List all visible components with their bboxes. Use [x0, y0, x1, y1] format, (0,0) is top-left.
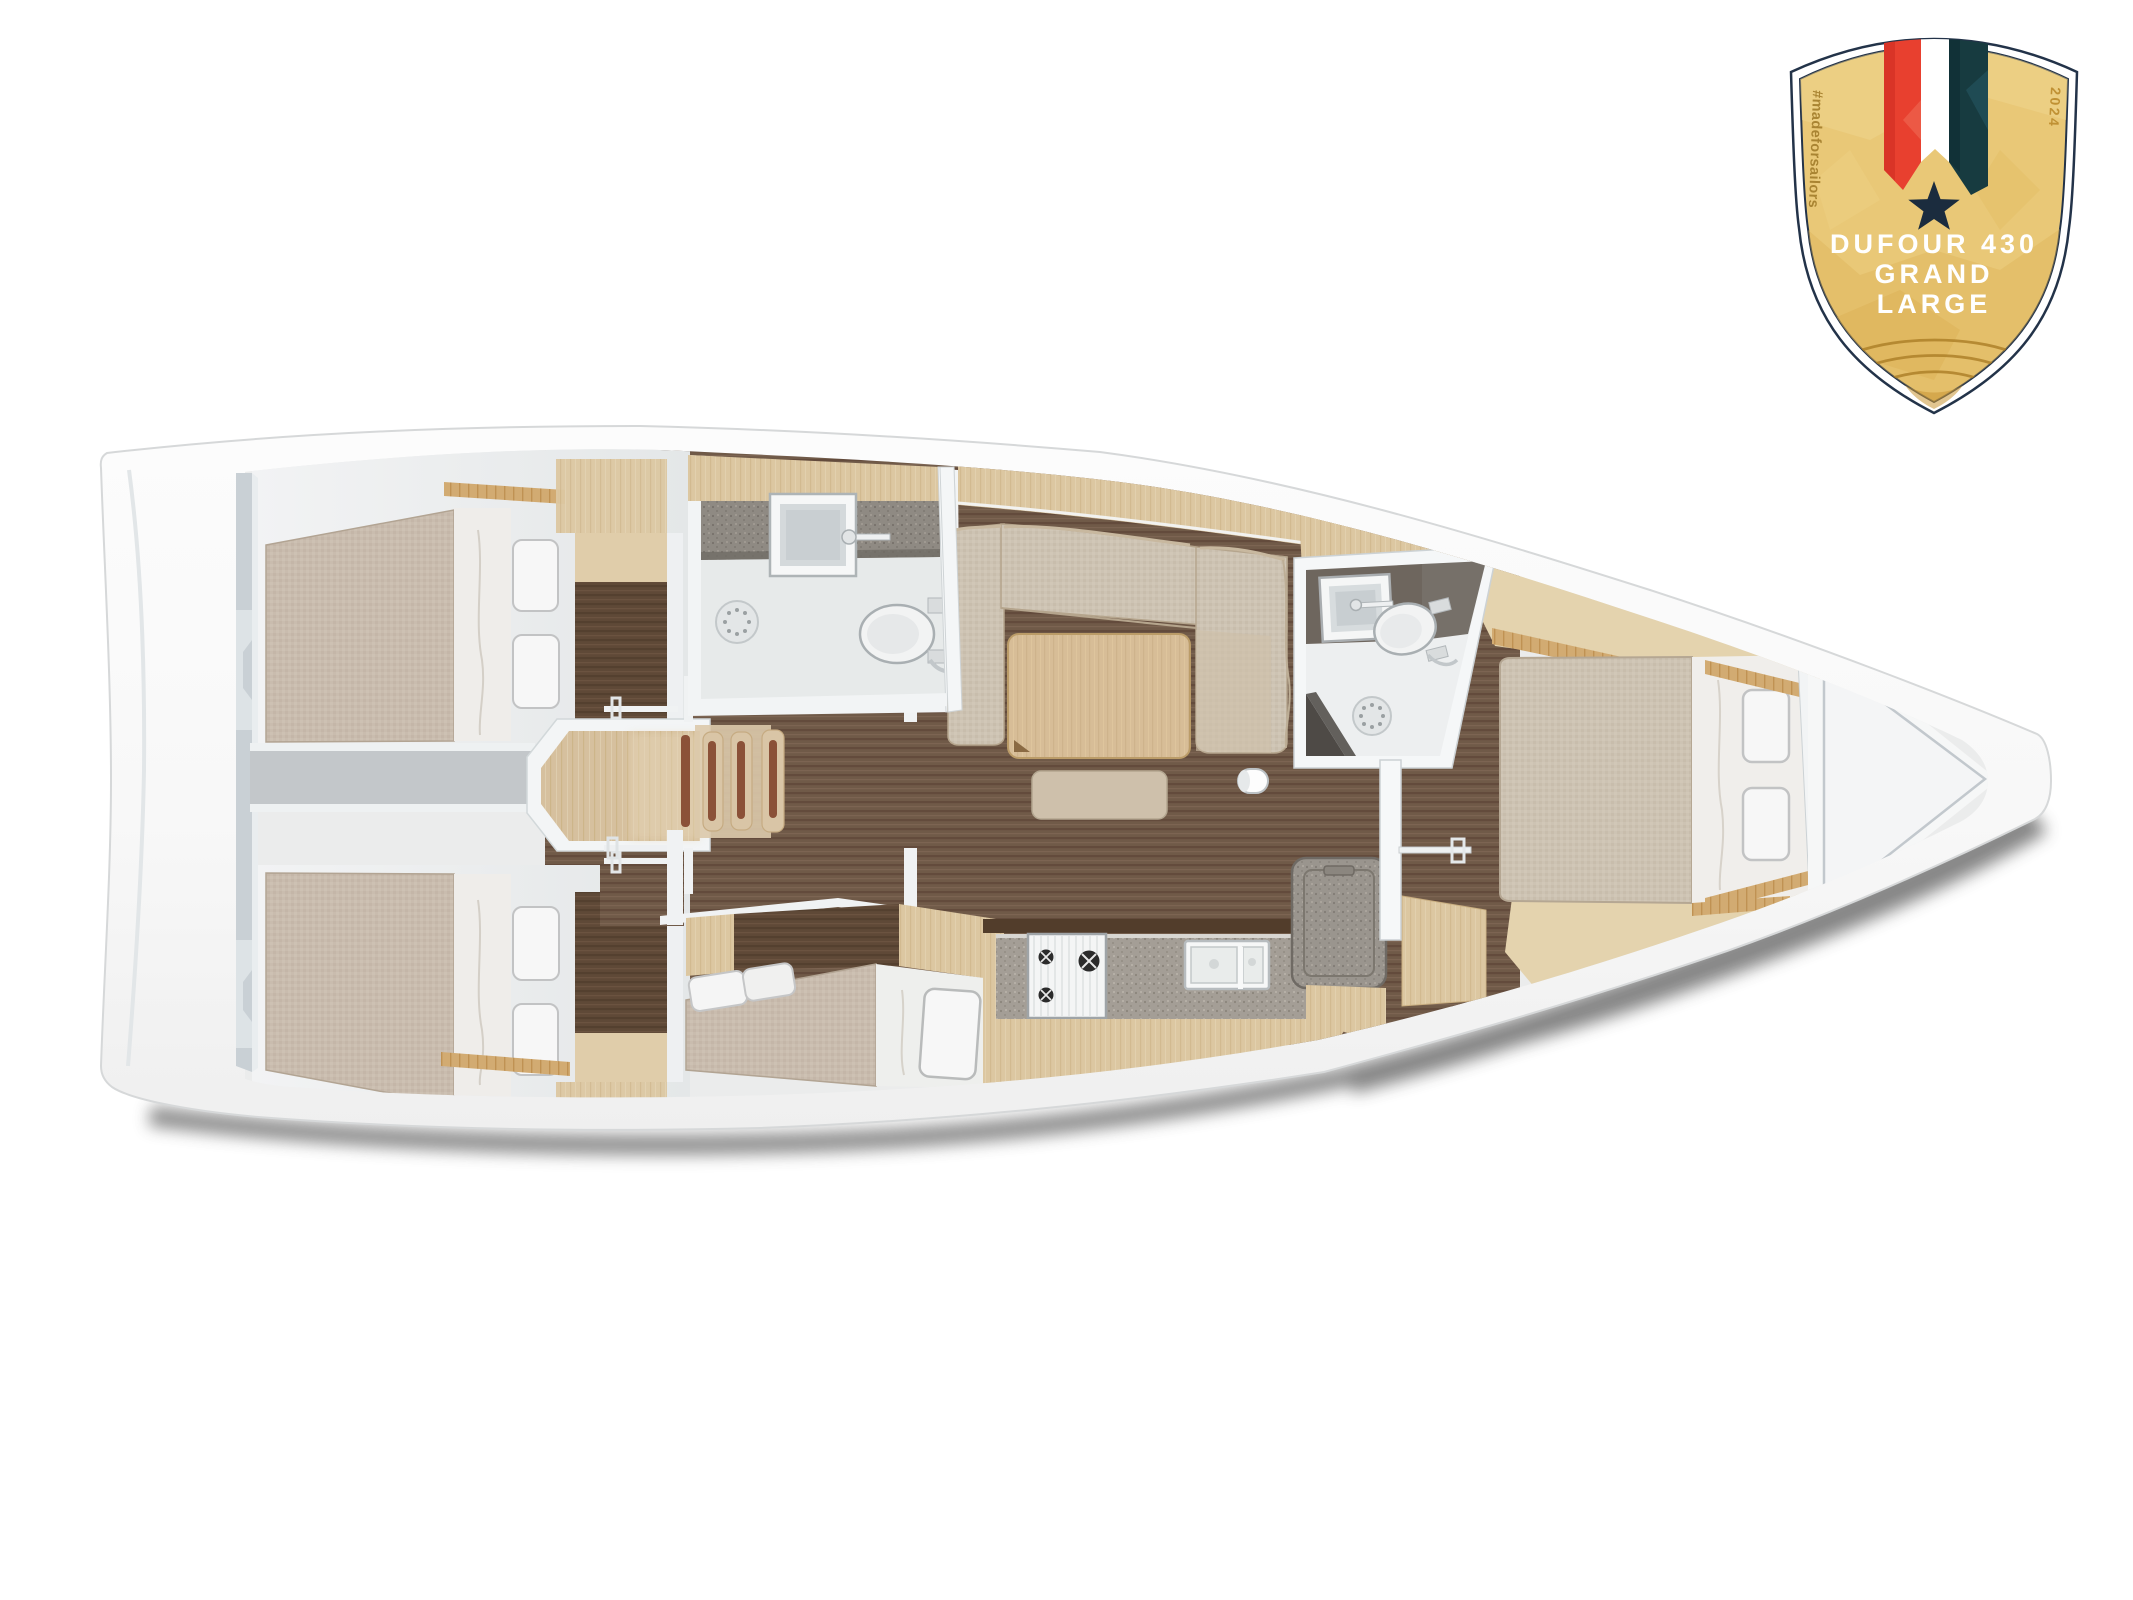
svg-text:LARGE: LARGE: [1877, 289, 1992, 319]
svg-text:GRAND: GRAND: [1875, 259, 1994, 289]
svg-text:2024: 2024: [2046, 87, 2064, 129]
svg-text:DUFOUR 430: DUFOUR 430: [1830, 229, 2038, 259]
